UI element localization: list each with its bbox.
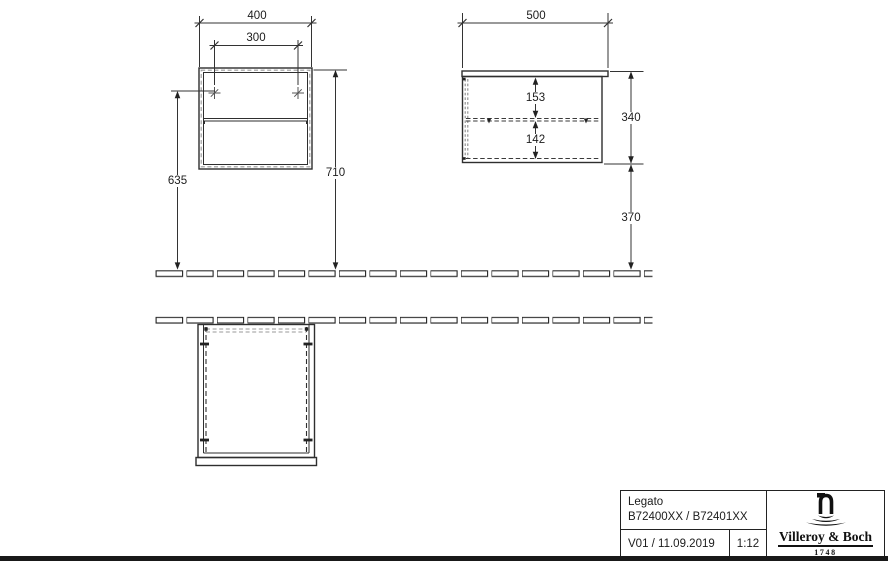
mounting-hole-right-icon xyxy=(292,87,304,99)
brand-name: Villeroy & Boch xyxy=(778,530,873,547)
dimension-drawing-page: 400 300 635 710 500 153 142 340 370 Lega… xyxy=(0,0,888,561)
title-block-product-cell: Legato B72400XX / B72401XX xyxy=(621,491,767,530)
title-block: Legato B72400XX / B72401XX V01 / 11.09.2… xyxy=(620,490,885,558)
dim-front-hole-height: 635 xyxy=(165,175,189,187)
article-numbers: B72400XX / B72401XX xyxy=(628,510,766,525)
drawing-scale: 1:12 xyxy=(730,530,767,557)
dim-front-total-height: 710 xyxy=(323,167,347,179)
bottom-border-bar xyxy=(0,556,888,561)
dim-side-cabinet-height: 340 xyxy=(619,112,643,124)
mounting-hole-left-icon xyxy=(209,87,221,99)
product-name: Legato xyxy=(628,495,766,510)
plan-view-cabinet xyxy=(196,325,317,466)
dim-front-hole-spacing: 300 xyxy=(244,32,268,44)
front-view-dimension-lines xyxy=(171,16,347,270)
dim-side-inner-bottom: 142 xyxy=(523,134,547,146)
drawing-linework xyxy=(0,0,888,561)
dim-side-depth: 500 xyxy=(524,10,548,22)
floor-line-elevation xyxy=(156,270,653,277)
villeroy-boch-fountain-icon xyxy=(800,492,852,530)
version-date: V01 / 11.09.2019 xyxy=(621,530,730,557)
side-view-dimension-lines xyxy=(458,13,644,270)
wall-line-plan xyxy=(156,317,653,324)
dim-side-inner-top: 153 xyxy=(523,92,547,104)
front-view-cabinet xyxy=(199,68,312,169)
dim-front-width: 400 xyxy=(245,10,269,22)
dim-side-floor-clearance: 370 xyxy=(619,212,643,224)
brand-logo: Villeroy & Boch 1748 xyxy=(767,491,884,557)
